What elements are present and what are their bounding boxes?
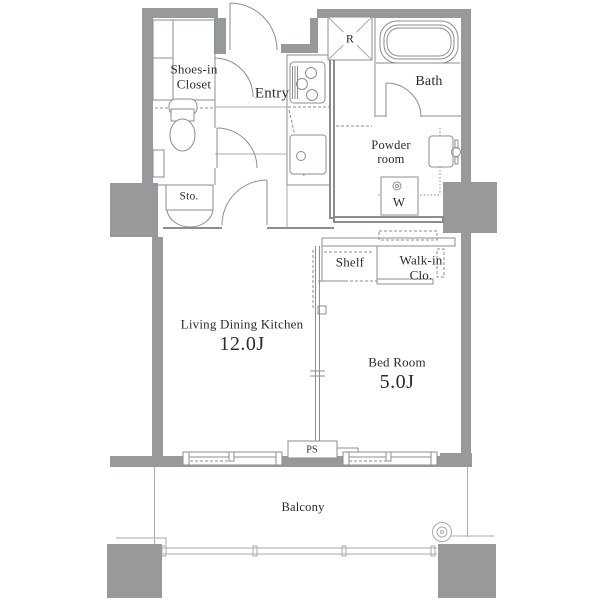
window-bedroom <box>343 452 437 465</box>
sink-icon <box>290 135 326 174</box>
label-shoes-closet: Shoes-in Closet <box>161 62 227 91</box>
window-ldk-cap-left <box>183 452 189 465</box>
pillar-balcony-right <box>438 544 496 598</box>
walkin-overhead-shelf-dash <box>379 231 437 240</box>
bathtub-icon <box>380 21 458 63</box>
bath-area <box>375 18 461 117</box>
window-ldk-cap-right <box>276 452 282 465</box>
wall-top-left <box>142 8 218 18</box>
label-washer: W <box>393 196 405 211</box>
toilet-bowl <box>170 119 195 151</box>
drain-icon <box>433 523 452 542</box>
entry-door-jamb-left <box>214 18 226 54</box>
label-bath: Bath <box>415 74 442 90</box>
ldk-door-arc <box>222 180 267 225</box>
drain-center <box>441 531 444 534</box>
entry-recess-wall <box>281 44 318 53</box>
window-ldk <box>183 452 282 465</box>
label-shelf: Shelf <box>336 256 364 271</box>
drain-mid <box>437 527 447 537</box>
toilet-side-cabinet <box>153 150 164 177</box>
balcony-railing <box>162 546 437 556</box>
bathtub-inner <box>387 28 451 56</box>
sink-basin <box>290 135 326 174</box>
window-bed-mullion <box>386 452 391 461</box>
window-ldk-mullion <box>229 452 234 461</box>
toilet-icon <box>169 99 197 151</box>
powder-wall-bottom <box>334 217 443 222</box>
vanity-icon <box>429 136 461 167</box>
floor-plan: Shoes-in Closet Entry R Bath Powder room… <box>0 0 600 600</box>
storage-door-arc-left <box>167 210 190 227</box>
vanity-cabinet <box>429 136 453 167</box>
toilet-door-arc <box>217 128 257 168</box>
stove-icon <box>290 62 325 103</box>
drain-outer <box>433 523 452 542</box>
window-bed-cap-left <box>343 452 349 465</box>
bathtub-outer <box>380 21 458 63</box>
bathtub-mid <box>384 25 454 59</box>
kitchen-area <box>287 53 334 228</box>
label-balcony: Balcony <box>281 500 324 514</box>
label-bedroom-area: 5.0J <box>380 371 415 393</box>
vanity-fitting-top <box>455 140 458 148</box>
storage-door-arc-right <box>190 210 213 227</box>
pillar-right <box>443 182 497 233</box>
label-entry: Entry <box>255 86 289 103</box>
window-bed-cap-right <box>431 452 437 465</box>
closet-north-wall <box>322 238 455 246</box>
label-ldk-name: Living Dining Kitchen <box>181 318 304 333</box>
balcony-divider-left <box>116 538 166 545</box>
entry-recess-return <box>310 18 318 45</box>
toilet-room <box>153 99 257 185</box>
label-bedroom-name: Bed Room <box>368 356 426 371</box>
room-partition <box>163 180 334 443</box>
pillar-balcony-left <box>107 544 162 598</box>
label-walk-in-closet: Walk-in Clo. <box>391 253 451 282</box>
wall-right <box>461 9 471 467</box>
label-storage: Sto. <box>179 191 198 204</box>
vanity-fitting-bottom <box>455 157 458 164</box>
label-refrigerator: R <box>343 32 357 45</box>
label-ldk-area: 12.0J <box>219 333 264 355</box>
wall-left-upper <box>142 8 153 183</box>
kitchen-corridor-wall <box>330 53 334 218</box>
pillar-left <box>110 183 158 237</box>
label-pipe-space: PS <box>306 444 318 455</box>
label-powder-room: Powder room <box>362 138 420 166</box>
entry-door-arc <box>230 3 277 50</box>
wall-left-lower <box>152 237 163 466</box>
